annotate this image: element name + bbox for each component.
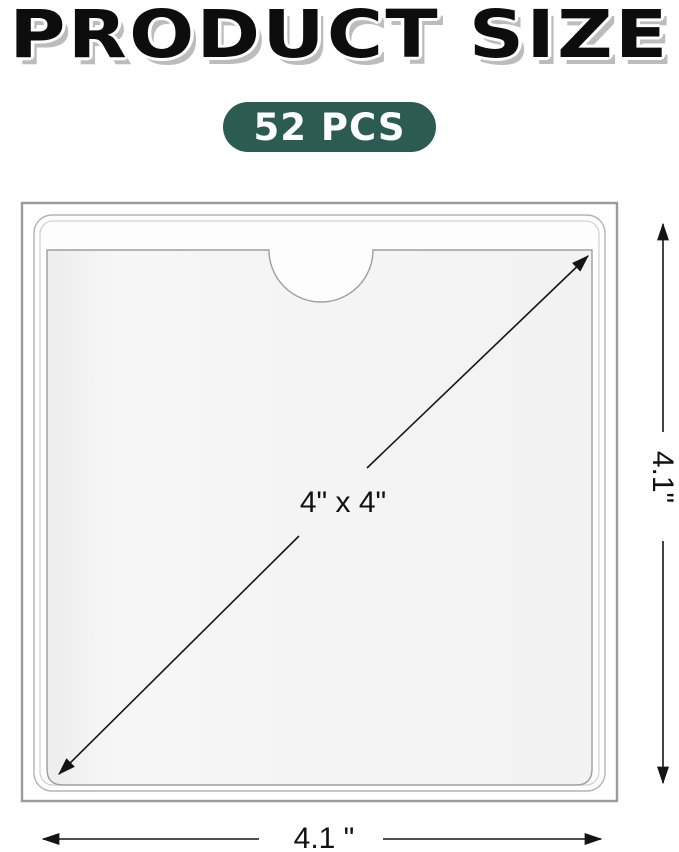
product-size-infographic: PRODUCT SIZE 52 PCS — [0, 0, 679, 852]
pocket-diagram — [0, 0, 679, 852]
width-dimension-label: 4.1 " — [264, 822, 384, 852]
height-dimension-label: 4.1" — [649, 441, 679, 513]
diagonal-dimension-label: 4" x 4" — [278, 486, 408, 520]
